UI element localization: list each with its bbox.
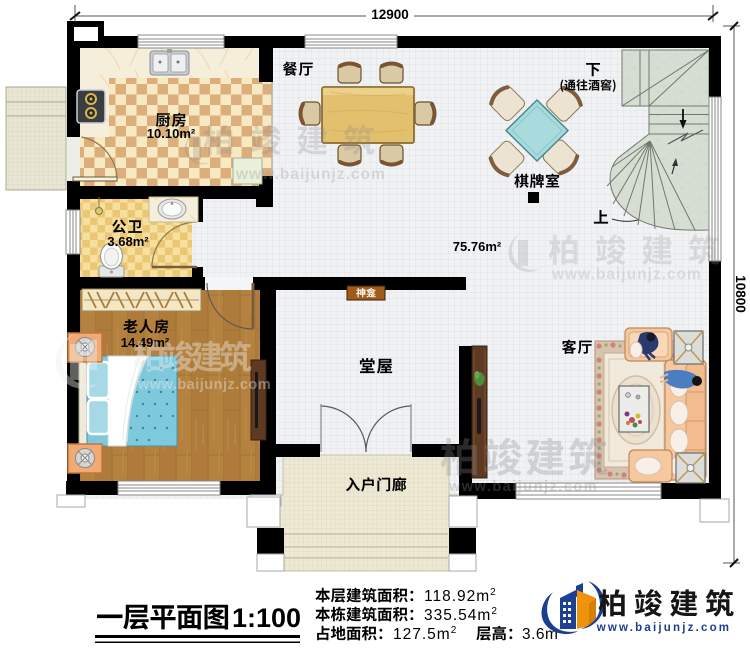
- svg-text:10800: 10800: [733, 275, 748, 313]
- svg-text:www.baijunjz.com: www.baijunjz.com: [596, 622, 731, 634]
- svg-text:www.baijunjz.com: www.baijunjz.com: [235, 166, 386, 183]
- svg-text:www.baijunjz.com: www.baijunjz.com: [448, 479, 598, 495]
- svg-text:118.92m2: 118.92m2: [424, 587, 497, 605]
- svg-text:3.68m²: 3.68m²: [107, 234, 149, 249]
- svg-text:75.76m²: 75.76m²: [453, 239, 502, 254]
- svg-text:335.54m2: 335.54m2: [424, 606, 498, 624]
- svg-text:www.baijunjz.com: www.baijunjz.com: [137, 377, 271, 393]
- svg-text:127.5m2: 127.5m2: [393, 625, 457, 643]
- svg-text:1:100: 1:100: [232, 603, 301, 633]
- svg-text:12900: 12900: [371, 7, 409, 22]
- svg-text:www.baijunjz.com: www.baijunjz.com: [551, 266, 702, 283]
